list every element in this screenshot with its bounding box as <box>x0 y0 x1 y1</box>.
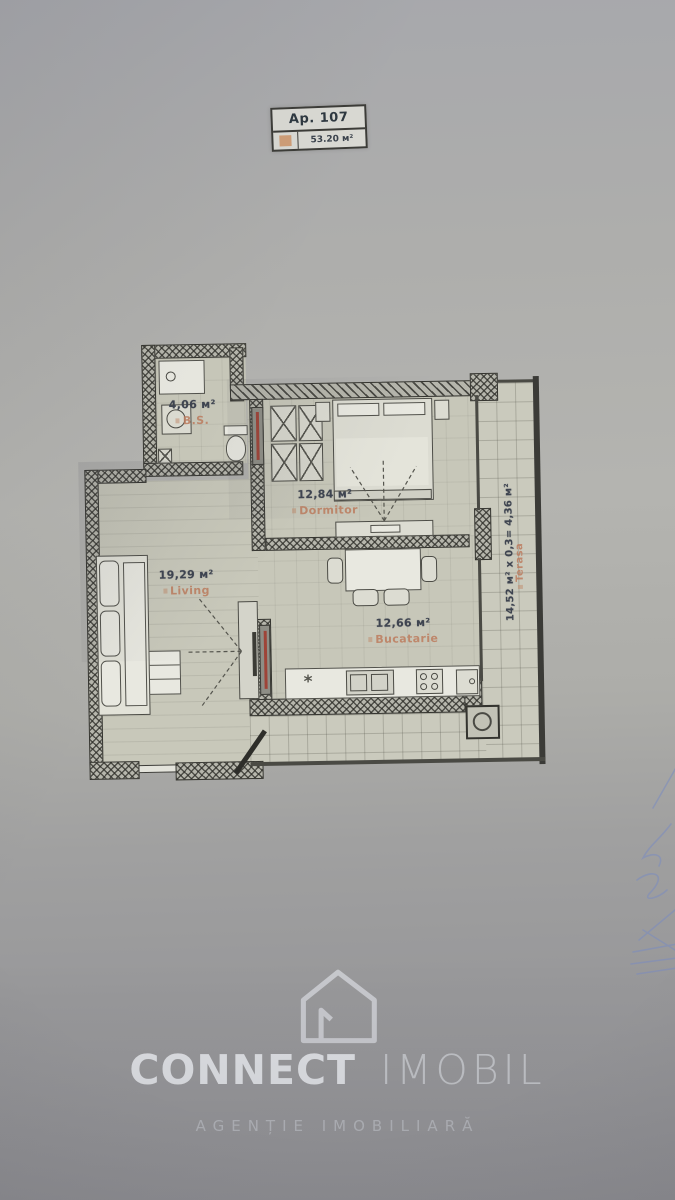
brand-name: CONNECT IMOBIL <box>0 1050 675 1091</box>
burner-icon <box>431 673 438 680</box>
apartment-area-row: 53.20 м² <box>273 129 366 150</box>
living-name-label: Living <box>138 583 234 598</box>
bathroom-door-threshold <box>158 448 172 463</box>
bathroom-name-label: B.S. <box>150 413 234 427</box>
kitchen-sink <box>346 670 394 696</box>
kitchen-name-label: Bucatarie <box>353 632 453 647</box>
shower-drain-icon <box>166 371 176 381</box>
apartment-title-box: Ap. 107 53.20 м² <box>270 104 368 152</box>
kitchen-counter: * <box>285 665 481 699</box>
wardrobe-unit <box>299 443 324 481</box>
sofa-cushion <box>101 660 122 706</box>
sofa-cushion <box>99 560 120 606</box>
floor-plan: * <box>76 334 552 794</box>
chair <box>352 589 378 606</box>
tv-on-dresser <box>370 524 400 533</box>
house-icon <box>295 968 381 1044</box>
kitchen-sliding-door <box>259 625 271 695</box>
burner-icon <box>420 673 427 680</box>
pillow-right <box>383 402 425 416</box>
tv-unit <box>238 601 260 699</box>
chair <box>383 588 409 605</box>
chair <box>421 556 437 582</box>
wardrobe-unit <box>270 405 297 441</box>
burner-icon <box>420 683 427 690</box>
sink-basin <box>371 674 388 691</box>
bedroom-area-label: 12,84 м² <box>277 487 373 502</box>
tv-screen <box>252 632 257 676</box>
sofa-seat <box>123 562 148 706</box>
stove <box>416 669 443 694</box>
bed-blanket <box>336 437 429 487</box>
sofa-cushion <box>100 610 121 656</box>
brand-primary: CONNECT <box>129 1046 356 1094</box>
nightstand-right <box>434 400 449 420</box>
double-bed <box>332 398 434 502</box>
ventilation-shaft <box>465 705 500 740</box>
room-number-mark <box>518 585 523 589</box>
bedroom-name-label: Dormitor <box>277 503 373 518</box>
burner-icon <box>431 683 438 690</box>
apartment-total-area: 53.20 м² <box>298 129 366 149</box>
terrace-name-label: Terasa <box>514 536 526 596</box>
hall-sliding-door <box>251 407 264 465</box>
legend-color-cell <box>273 132 299 150</box>
agency-watermark: CONNECT IMOBIL AGENȚIE IMOBILIARĂ <box>0 968 675 1135</box>
toilet-bowl <box>226 435 246 461</box>
wall-living-bottom-left <box>89 761 139 780</box>
nightstand-left <box>315 402 330 422</box>
brand-tagline: AGENȚIE IMOBILIARĂ <box>0 1117 675 1135</box>
hob-icon: * <box>298 672 318 694</box>
chair <box>327 557 343 583</box>
kitchen-area-label: 12,66 м² <box>353 616 453 631</box>
brand-secondary: IMOBIL <box>380 1046 546 1094</box>
tv-dresser <box>335 520 433 538</box>
room-number-mark <box>368 637 372 642</box>
living-area-label: 19,29 м² <box>138 567 234 582</box>
vent-duct-icon <box>473 712 492 731</box>
fridge <box>456 669 478 694</box>
living-window <box>139 764 177 773</box>
fridge-handle-icon <box>469 678 475 684</box>
bathroom-area-label: 4,06 м² <box>150 397 234 411</box>
shower-tray <box>158 360 205 395</box>
side-table <box>148 650 181 695</box>
toilet-tank <box>224 425 248 435</box>
sink-basin <box>350 674 367 691</box>
room-number-mark <box>176 418 180 423</box>
signature-stamp <box>619 762 675 982</box>
wall-terrace-mid-stub <box>474 508 492 560</box>
legend-color-swatch <box>279 135 291 146</box>
terrace-floor-bottom <box>250 712 487 764</box>
pillow-left <box>337 403 379 417</box>
wall-terrace-top-stub <box>470 373 498 401</box>
room-number-mark <box>292 508 296 513</box>
room-number-mark <box>163 589 167 594</box>
dining-table <box>345 548 422 591</box>
wardrobe-unit <box>271 443 298 481</box>
